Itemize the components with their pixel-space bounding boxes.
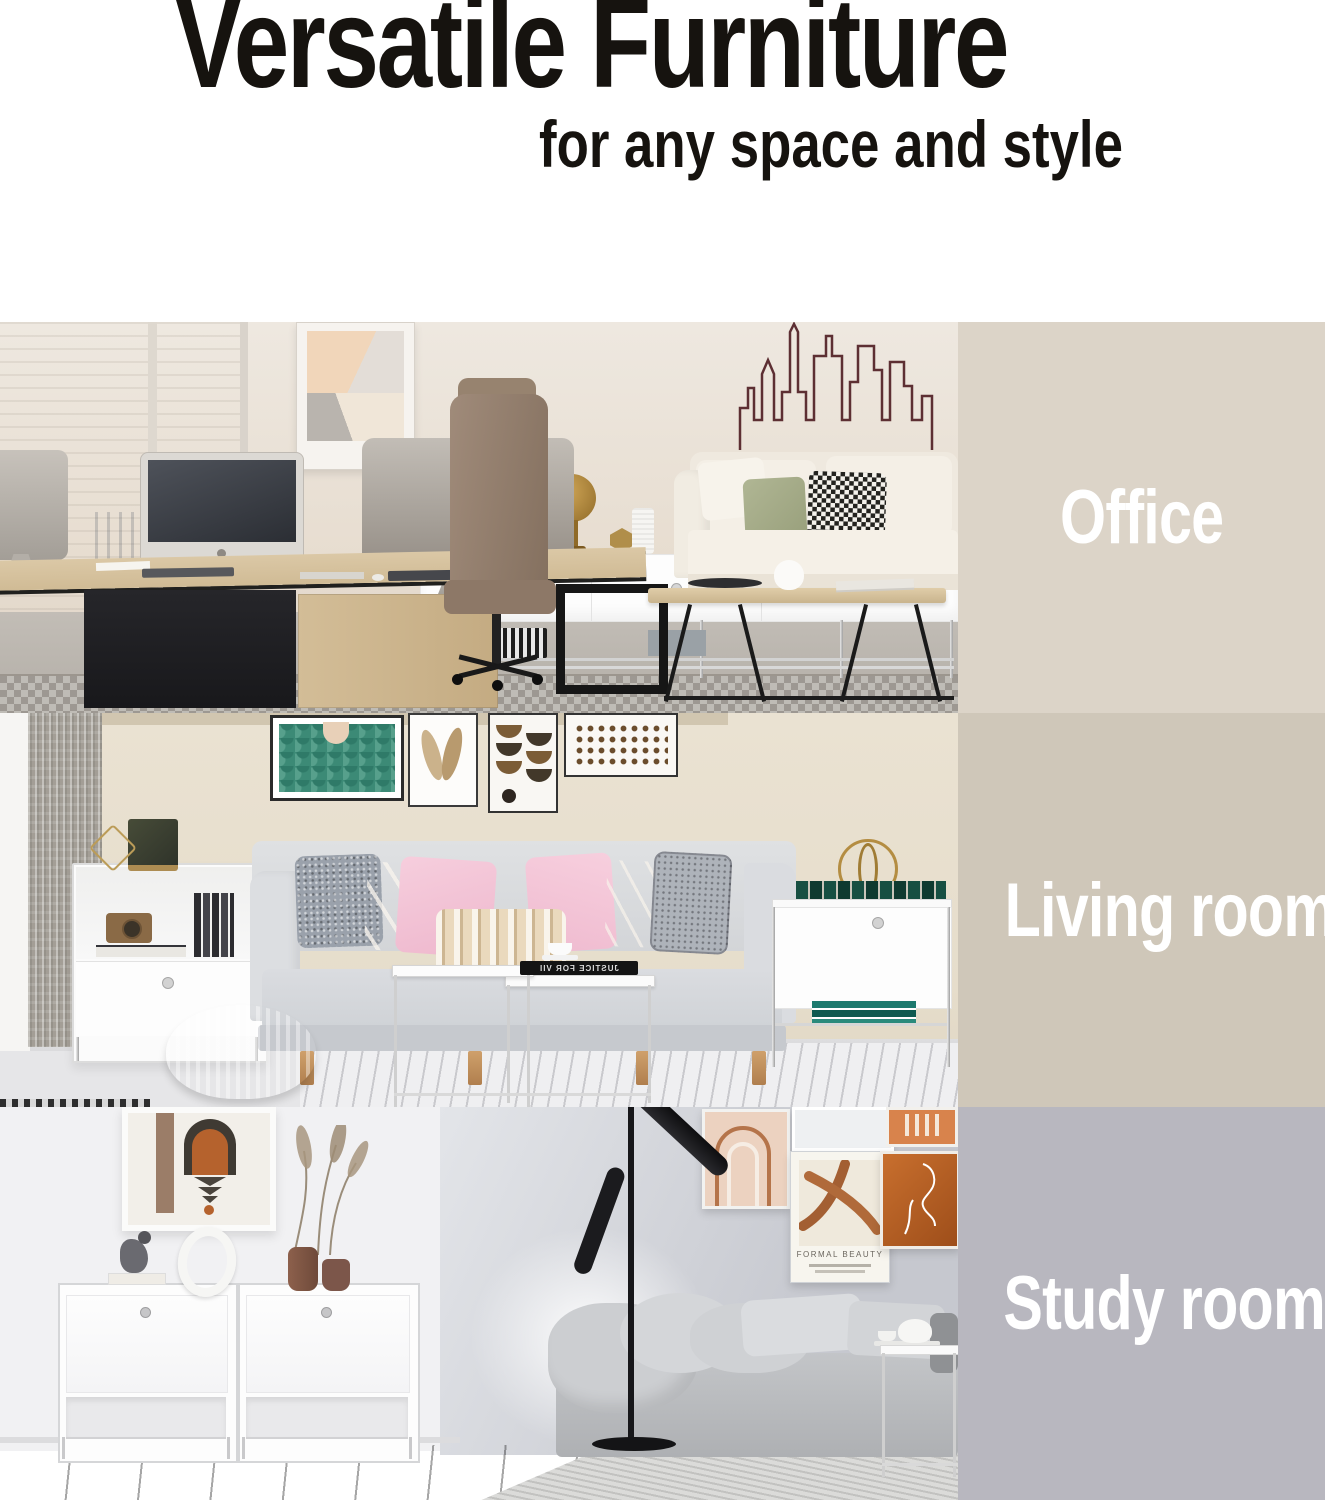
face-line-drawing: [883, 1154, 957, 1246]
table-top: [392, 965, 534, 977]
chrome-leg: [527, 975, 530, 1107]
keyboard: [300, 572, 364, 579]
mouse: [372, 574, 384, 581]
study-cabinet-unit: [238, 1283, 420, 1463]
art-triangle: [194, 1177, 226, 1186]
gray-frame-art: [792, 1107, 894, 1151]
poster-caption-line: [809, 1264, 871, 1267]
teal-books-stack: [812, 1001, 916, 1023]
wing-shape: [438, 726, 467, 782]
half-circle: [526, 733, 552, 746]
sideboard-wire-shelf: [424, 658, 954, 661]
abstract-arch-art: [122, 1107, 276, 1231]
art-brown-bar: [156, 1113, 174, 1213]
teal-portrait-art: [270, 715, 404, 801]
office-chair-seat: [444, 580, 556, 614]
chrome-leg: [840, 620, 843, 678]
wood-leg: [752, 1051, 766, 1085]
chrome-leg: [227, 1437, 230, 1459]
books-upright: [194, 893, 234, 957]
chrome-leg: [76, 1037, 79, 1061]
caster-wheel: [492, 680, 503, 691]
desk-black-panel: [84, 590, 296, 708]
coffee-table-top: [648, 588, 946, 603]
art-triangle: [202, 1196, 218, 1203]
dots-pattern: [574, 723, 668, 767]
floor-lamp-pole: [628, 1107, 634, 1447]
dots-grid-art: [564, 713, 678, 777]
saucer: [542, 955, 578, 960]
decor-vase-round: [774, 560, 804, 590]
floor-lamp-base: [592, 1437, 676, 1451]
cabinet-shelf-line: [246, 1437, 408, 1439]
green-decor-box: [128, 819, 178, 871]
wall-art-peach-shape: [307, 331, 404, 393]
cabinet-open-lower: [66, 1397, 226, 1437]
art-orange-arch: [192, 1129, 228, 1175]
geometric-art: [488, 713, 558, 813]
chrome-leg: [62, 1437, 65, 1459]
office-chair-back: [450, 394, 548, 594]
book-stack-flat: [96, 945, 186, 957]
cabinet-open-lower: [246, 1397, 408, 1437]
poster-title-text: FORMAL BEAUTY: [791, 1250, 889, 1259]
sheer-curtain: [0, 713, 30, 1051]
chrome-leg: [394, 975, 397, 1107]
tea-cup: [878, 1331, 896, 1341]
speckled-pillow: [649, 851, 732, 955]
lock-icon: [162, 977, 174, 989]
decor-tray: [688, 578, 762, 588]
table-shelf-bar: [394, 1093, 530, 1096]
book-title-text: JUSTICE FOR VII: [539, 964, 619, 973]
nesting-table-front: [392, 965, 532, 1107]
teapot: [898, 1319, 932, 1343]
dot: [502, 789, 516, 803]
chrome-leg: [772, 907, 775, 1067]
product-image: Versatile Furniture for any space and st…: [0, 0, 1325, 1500]
books-row: [796, 881, 946, 899]
black-book: JUSTICE FOR VII: [520, 961, 638, 975]
pampas-grass: [270, 1125, 380, 1255]
white-cabinet-right: [772, 873, 950, 1069]
chrome-leg: [242, 1437, 245, 1459]
poster-curves: [799, 1160, 881, 1246]
art-triangle: [198, 1187, 222, 1195]
study-room-photo: FORMAL BEAUTY: [0, 1107, 958, 1500]
imac-screen: [148, 460, 296, 542]
imac-back-left: [0, 450, 68, 560]
dark-striped-mat: [0, 1099, 150, 1107]
formal-beauty-poster: FORMAL BEAUTY: [790, 1151, 890, 1283]
knitted-pouf: [166, 1005, 316, 1099]
chrome-leg: [947, 907, 950, 1067]
living-room-photo: JUSTICE FOR VII: [0, 713, 958, 1107]
office-label: Office: [1060, 474, 1223, 561]
section-office: Office: [0, 322, 1325, 713]
daybed-pillow: [740, 1293, 864, 1357]
office-chair-post: [492, 614, 501, 666]
brown-vase: [288, 1247, 318, 1291]
section-living-room: JUSTICE FOR VII Living room: [0, 713, 1325, 1107]
wings-art: [408, 713, 478, 807]
cabinet-wire-shelf: [772, 1023, 950, 1026]
study-cabinet-unit: [58, 1283, 238, 1463]
poster-caption-line: [815, 1270, 865, 1273]
orange-line-portrait-art: [880, 1151, 958, 1249]
lock-icon: [321, 1307, 332, 1318]
half-circle: [496, 725, 522, 738]
chrome-leg: [409, 1437, 412, 1459]
city-skyline-drawing: [738, 322, 958, 450]
chrome-leg: [648, 985, 651, 1103]
section-study-room: FORMAL BEAUTY: [0, 1107, 1325, 1500]
book-stack: [108, 1273, 166, 1285]
table-shelf-bar: [882, 1463, 956, 1466]
wall-art-gray-shape: [307, 393, 404, 441]
sculpture-head: [138, 1231, 151, 1244]
page-title: Versatile Furniture: [175, 0, 1007, 108]
chrome-leg: [950, 620, 953, 678]
art-dot: [204, 1205, 214, 1215]
orange-bars-art: [886, 1107, 958, 1147]
desk-mat: [142, 567, 234, 578]
caster-wheel: [532, 674, 543, 685]
cabinet-flap-door: [772, 907, 952, 1009]
living-room-label-panel: Living room: [958, 713, 1325, 1107]
coffee-cup: [548, 943, 572, 955]
bars-pattern: [905, 1114, 939, 1136]
study-room-label: Study room: [1003, 1260, 1325, 1347]
cabinet-shelf-line: [66, 1437, 226, 1439]
page-subtitle: for any space and style: [539, 111, 1123, 177]
lock-icon: [140, 1307, 151, 1318]
camera-lens: [122, 919, 142, 939]
table-top: [880, 1345, 958, 1355]
study-room-label-panel: Study room: [958, 1107, 1325, 1500]
office-photo: [0, 322, 958, 713]
brown-vase: [322, 1259, 350, 1291]
poster-artwork: [799, 1160, 881, 1246]
caster-wheel: [452, 674, 463, 685]
office-label-panel: Office: [958, 322, 1325, 713]
lock-icon: [872, 917, 884, 929]
chrome-leg: [882, 1353, 885, 1477]
living-room-label: Living room: [1005, 867, 1325, 954]
chrome-leg: [953, 1353, 956, 1477]
coffee-table-stretcher: [664, 696, 954, 700]
side-table: [880, 1345, 958, 1477]
